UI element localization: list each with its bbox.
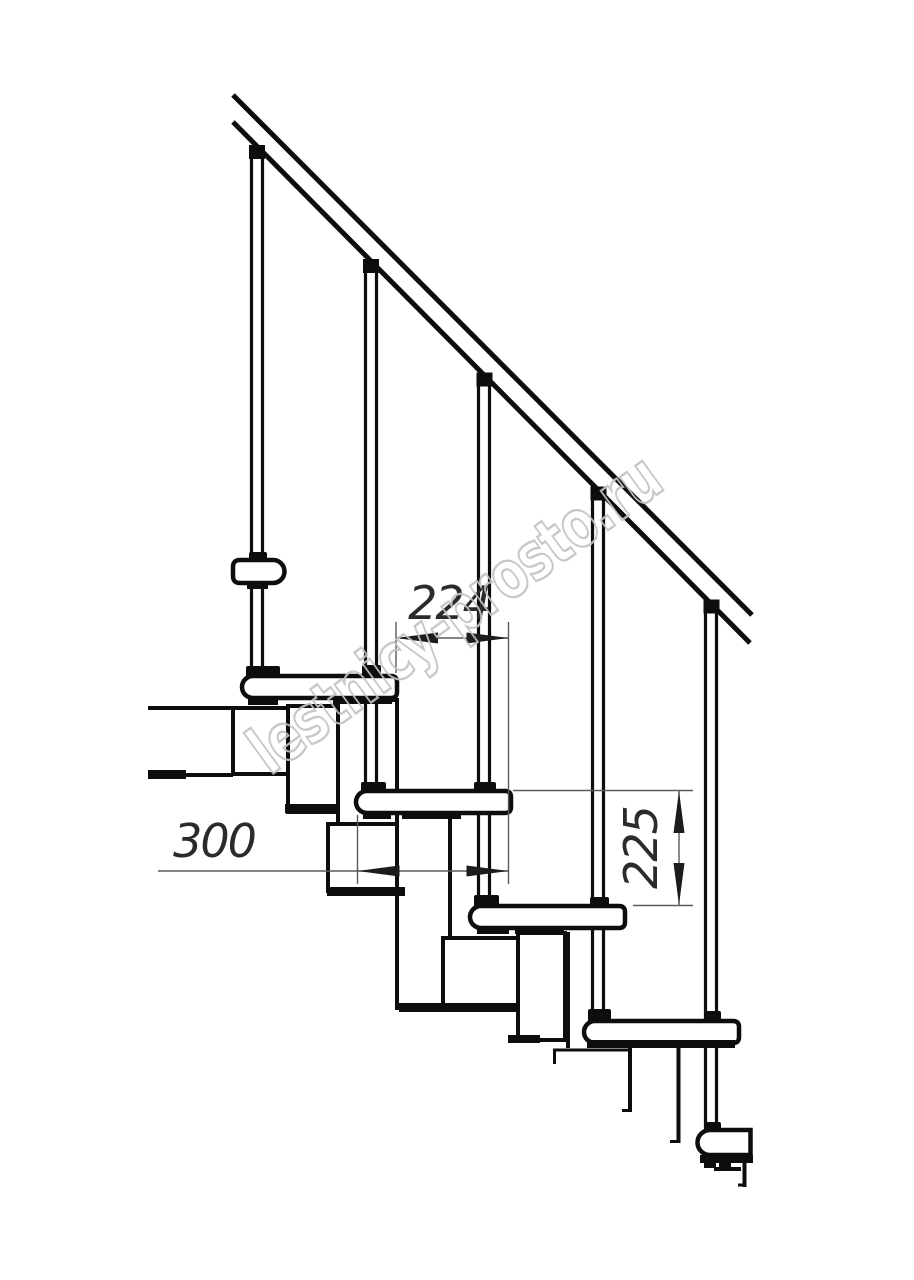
handrail-top-line [233,95,752,615]
pad-collar-step5 [704,1011,721,1022]
tread-3 [356,791,511,813]
rail-connector-2 [363,259,379,273]
bar-under-step5-full [587,1040,735,1048]
module-under-step3-offset [443,938,518,1006]
watermark-text: lestnicy-prosto.ru [234,439,676,789]
plate-upper-flight [148,770,186,779]
module-under-step2-offset [328,824,404,891]
module-under-step4-strip [518,933,565,1040]
baluster-1 [252,152,263,674]
bar-under-step4-module [515,926,564,934]
plate-module-step2-offset [327,887,405,896]
lower-structure [553,1045,753,1187]
rail-connector-3 [477,373,493,387]
baluster-5 [706,608,717,1128]
tread-5 [584,1021,739,1043]
arrow-up-225 [674,791,685,833]
baluster-4 [593,494,604,1016]
bar-under-step3-module [402,811,461,819]
tread-4 [470,906,625,928]
bar-under-step3-left [363,811,391,819]
plate-module-step2-left [285,804,338,813]
pad-collar-step1 [249,552,267,562]
bar-under-step1 [247,583,268,589]
tread-bottom-endview [698,1130,751,1155]
pad-base-step3 [361,782,386,792]
treads [233,560,751,1155]
tread-top-endview [233,560,285,583]
pad-collar-step3 [474,782,496,792]
pad-base-step4 [474,895,499,907]
staircase-drawing: 224 300 225 [0,0,914,1280]
rail-connector-1 [249,145,265,159]
plate-module-step3 [399,1003,518,1012]
dim-label-300: 300 [173,814,255,868]
bar-under-step4-left [477,926,509,934]
arrow-down-225 [674,863,685,905]
drawing-canvas: 224 300 225 [0,0,914,1280]
dim-label-225: 225 [614,807,668,889]
plate-module-step4 [508,1035,540,1043]
pad-base-step5 [588,1009,611,1022]
bottom-module-band [700,1155,753,1163]
pad-collar-step4 [590,897,609,907]
pad-base-step2 [246,666,280,677]
pad-base-step6 [704,1122,721,1132]
rail-connector-5 [704,600,720,614]
